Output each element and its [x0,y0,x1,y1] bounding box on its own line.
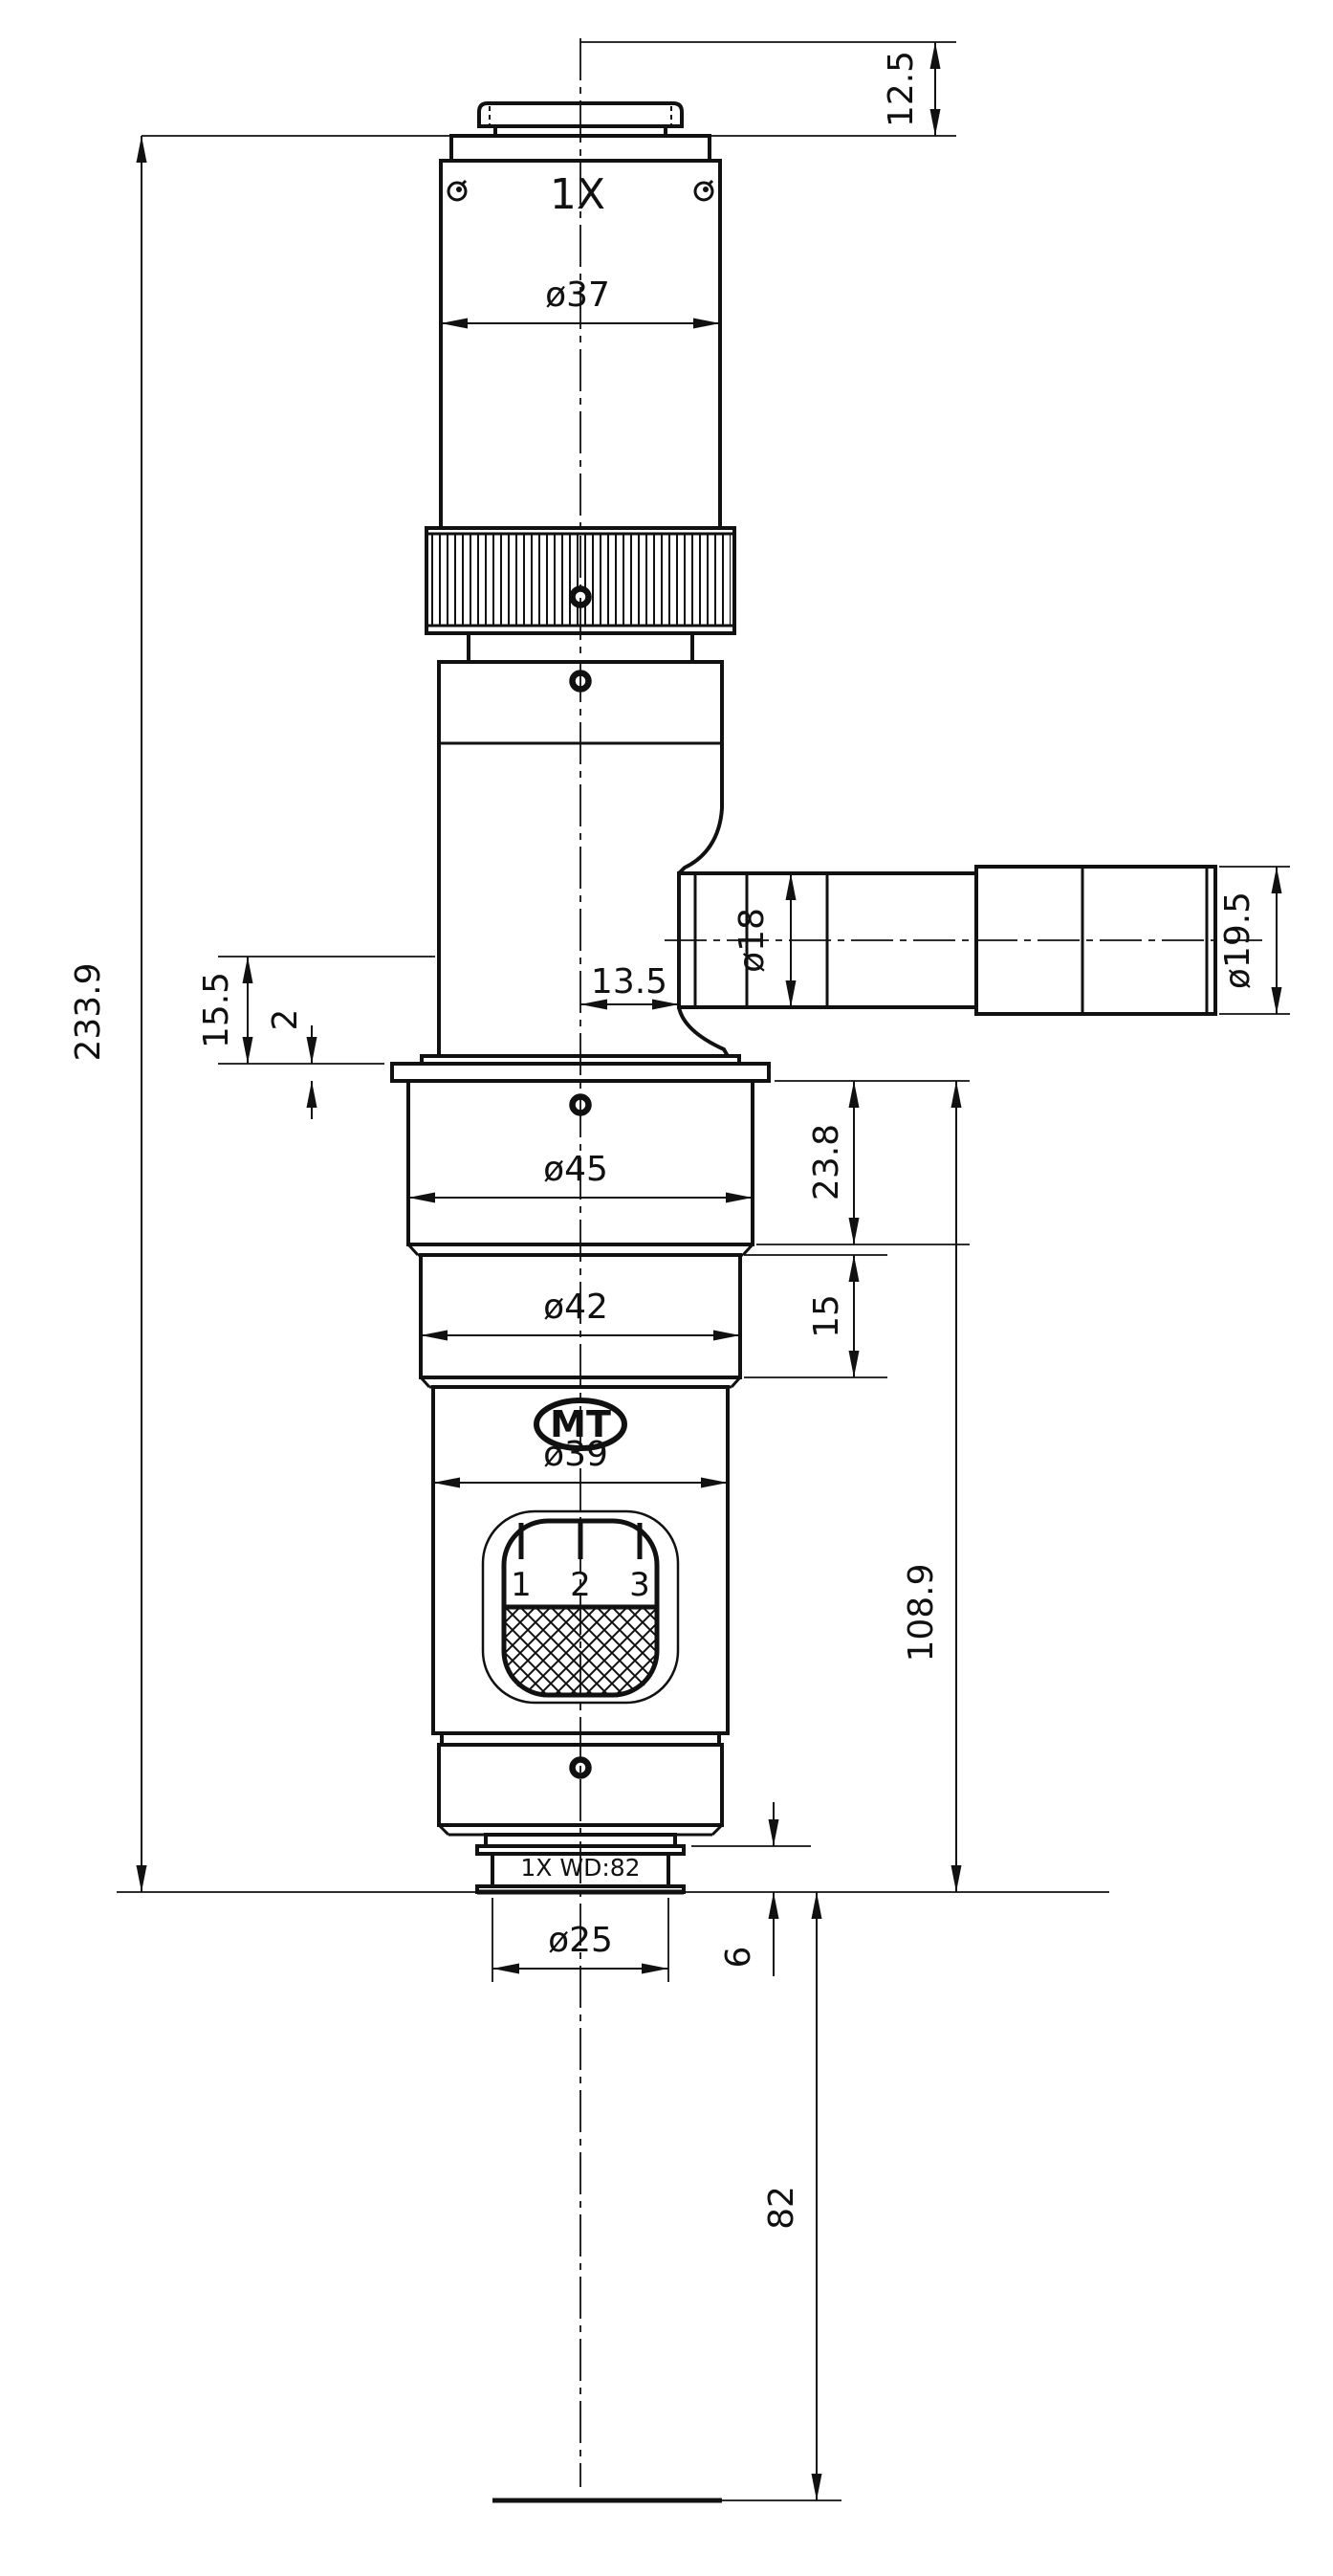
dim-label: 23.8 [807,1124,846,1200]
dim-label: 12.5 [882,51,921,127]
dim-label: ø25 [548,1921,613,1960]
dim-label: ø45 [543,1150,608,1189]
dim-label: 233.9 [69,962,108,1061]
zoom-mark-1: 1 [511,1566,532,1604]
technical-drawing: 1X [0,0,1333,2576]
zoom-mark-3: 3 [629,1566,650,1604]
dim-label: ø42 [543,1288,608,1327]
dim-label: 108.9 [902,1563,941,1662]
dim-label: 82 [762,2186,801,2230]
dim-label: 15.5 [197,972,236,1048]
drawing-sheet: 1X [0,0,1333,2576]
dim-label: ø37 [545,275,610,315]
dim-label: 2 [266,1009,305,1031]
magnification-label: 1X [550,170,605,219]
dim-label: ø19.5 [1218,892,1257,989]
dim-label: ø18 [732,908,772,973]
dim-label: 13.5 [591,962,667,1002]
dim-label: 6 [719,1947,758,1969]
dim-label: ø39 [543,1435,608,1474]
dim-label: 15 [807,1294,846,1338]
